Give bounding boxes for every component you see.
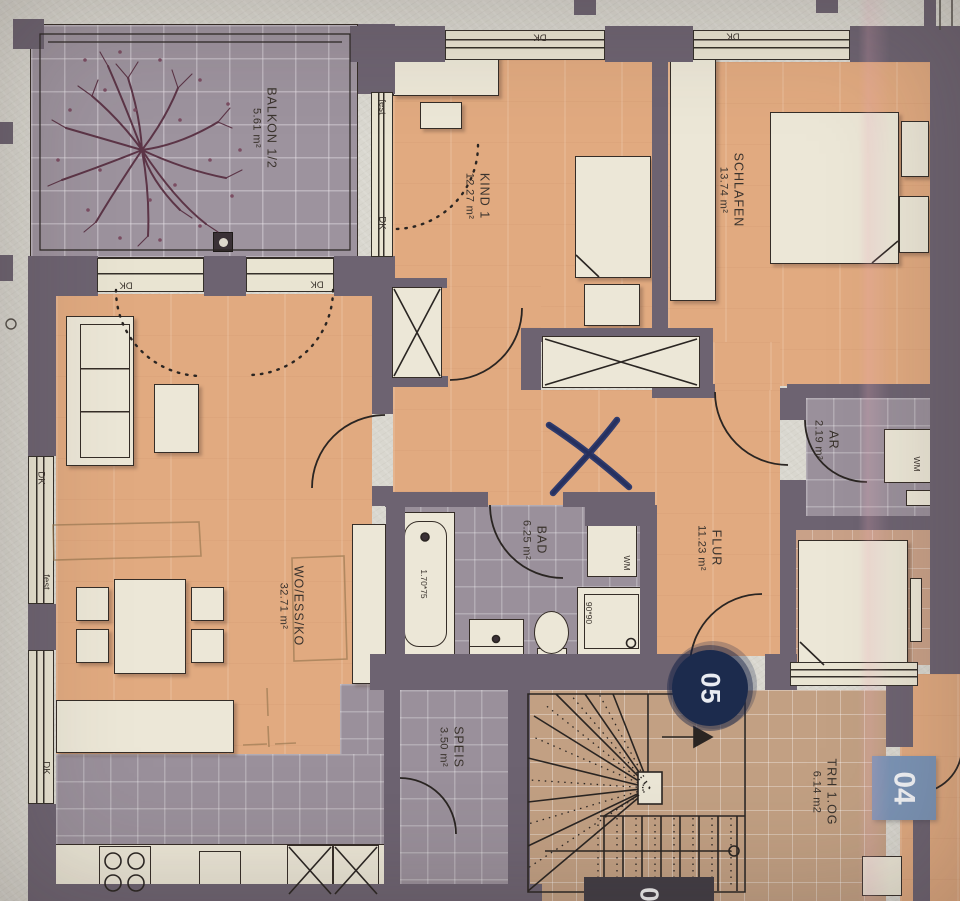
wall-stub [924, 0, 936, 30]
schlafen-double-bed [770, 112, 899, 264]
unit-badge-partial: 0 [584, 877, 714, 901]
room-label-wohnen: WO/ESS/KO32.71 m² [276, 566, 307, 647]
room-label-trh: TRH 1.OG6.14 m2 [809, 758, 840, 825]
room-label-bad: BAD6.25 m² [519, 520, 550, 560]
balcony-floor [30, 24, 358, 258]
wall [930, 34, 960, 674]
window-label-dk: DK [310, 279, 323, 290]
wall [385, 492, 488, 507]
window-kind1-balcony [371, 92, 393, 257]
wall [28, 884, 542, 901]
kind1-nightstand [584, 284, 640, 326]
washing-machine-ar [884, 429, 934, 483]
wall [28, 804, 56, 890]
schlafen-nightstand-bottom [899, 196, 929, 253]
wall [585, 505, 640, 526]
window-label-dk: DK [726, 31, 739, 42]
wall-stub [816, 0, 838, 13]
window-label-fest: fest [41, 574, 52, 589]
window-label-dk: DK [119, 280, 132, 291]
wall [521, 328, 541, 390]
wall [780, 388, 806, 420]
room-label-speis: SPEIS3.50 m² [436, 726, 467, 768]
neighbor-bed-bench [790, 662, 918, 686]
wall [28, 604, 56, 650]
wall [372, 296, 393, 414]
wall [334, 256, 395, 296]
neighbor-bed [798, 540, 908, 666]
coffee-table [154, 384, 199, 453]
stairhall-cabinet [862, 856, 902, 896]
unit-badge-04: 04 [872, 756, 936, 820]
kind1-side-table [420, 102, 462, 129]
wall [886, 685, 913, 747]
wall [386, 506, 405, 656]
room-label-ar: AR2.19 m² [811, 420, 842, 460]
speis-floor [400, 690, 508, 886]
window-living-left-2 [28, 650, 54, 804]
hall-closet [392, 287, 442, 378]
wall-stub [0, 255, 13, 281]
wall [28, 256, 98, 296]
wall [787, 384, 932, 398]
wall [780, 528, 796, 665]
washing-machine-label: WM [622, 555, 632, 570]
window-label-dk: DK [377, 216, 388, 229]
window-label-fest: fest [377, 99, 388, 114]
dining-table [114, 579, 186, 674]
floorplan-photo: BALKON 1/25.61 m² KIND 112.27 m² SCHLAFE… [0, 0, 960, 901]
window-label-dk: DK [36, 471, 47, 484]
neighbor-nightstand [910, 578, 922, 642]
wall [384, 676, 510, 690]
wall [794, 516, 934, 530]
wall [358, 24, 395, 94]
washing-machine-label: WM [912, 456, 922, 471]
schlafen-nightstand-top [901, 121, 929, 177]
balcony-drain [213, 232, 233, 252]
window-kind1-top [445, 30, 605, 60]
washbasin [469, 619, 524, 658]
window-label-dk: DK [533, 32, 546, 43]
balcony-pillar [13, 19, 44, 49]
wall-stub [574, 0, 596, 15]
room-label-kind1: KIND 112.27 m² [462, 173, 493, 220]
sideboard [56, 700, 234, 753]
wall [204, 256, 246, 296]
paper-hole-mark [6, 319, 16, 329]
dining-chair [76, 629, 109, 663]
sofa-cushions [80, 324, 130, 458]
wall [508, 680, 530, 901]
kind1-bed [575, 156, 651, 278]
balcony-door-threshold [97, 258, 204, 292]
toilet-bowl [534, 611, 569, 654]
dining-chair [191, 629, 224, 663]
corridor-schlafen-floor [713, 342, 780, 390]
wall [384, 676, 400, 901]
room-label-schlafen: SCHLAFEN13.74 m² [716, 153, 747, 228]
wall [640, 505, 657, 657]
dining-chair [76, 587, 109, 621]
bathtub-dimension-label: 1.70*75 [419, 569, 429, 598]
schlafen-wardrobe [670, 55, 716, 301]
wall [913, 810, 930, 901]
shower-dimension-label: 90*90 [584, 602, 594, 624]
room-label-balkon: BALKON 1/25.61 m² [249, 87, 280, 169]
wall [28, 294, 56, 456]
dining-chair [191, 587, 224, 621]
wall [605, 26, 693, 62]
wall-stub [0, 122, 13, 144]
room-label-flur: FLUR11.23 m² [694, 525, 725, 571]
unit-badge-05: 05 [672, 650, 748, 726]
duct-shaft [542, 336, 700, 388]
window-label-dk: DK [41, 761, 52, 774]
kitchen-floor-strip [340, 684, 386, 754]
window-schlafen-top [693, 30, 850, 60]
